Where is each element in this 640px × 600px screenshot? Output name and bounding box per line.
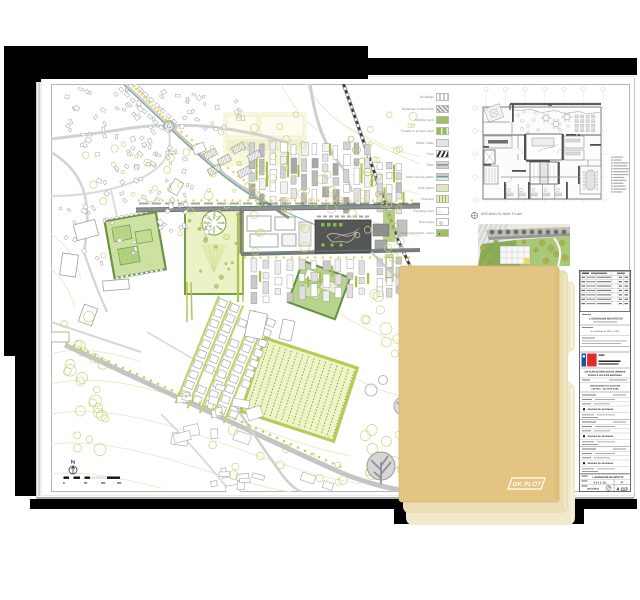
svg-text:L.GERVASONI ARCHITECTE: L.GERVASONI ARCHITECTE: [589, 318, 623, 321]
svg-text:POUR LA VILLE DE SANTIAGO: POUR LA VILLE DE SANTIAGO: [588, 374, 622, 377]
svg-text:Abstract for Architects: Abstract for Architects: [588, 462, 614, 465]
svg-text:UN PLAN DE RENOVATION URBAINE: UN PLAN DE RENOVATION URBAINE: [585, 371, 626, 374]
svg-text:29/11/2019: 29/11/2019: [587, 488, 600, 491]
svg-text:AMENAGEMENT DU QUARTIER: AMENAGEMENT DU QUARTIER: [590, 385, 621, 388]
svg-text:Abstract for Architects: Abstract for Architects: [588, 408, 614, 411]
svg-text:Av. Libertador B. 3625, of 100: Av. Libertador B. 3625, of 1002: [591, 330, 620, 333]
svg-text:CENTRAL - SECTEUR GARE: CENTRAL - SECTEUR GARE: [591, 387, 619, 390]
svg-text:A 113: A 113: [616, 486, 628, 491]
svg-text:5 0 0 1° 25,: 5 0 0 1° 25,: [594, 482, 607, 485]
svg-text:Abstract for Architects: Abstract for Architects: [588, 435, 614, 438]
svg-text:L.GERVASONI.ARCHITECTE: L.GERVASONI.ARCHITECTE: [592, 476, 624, 479]
svg-text:DK PLOT: DK PLOT: [513, 481, 543, 488]
